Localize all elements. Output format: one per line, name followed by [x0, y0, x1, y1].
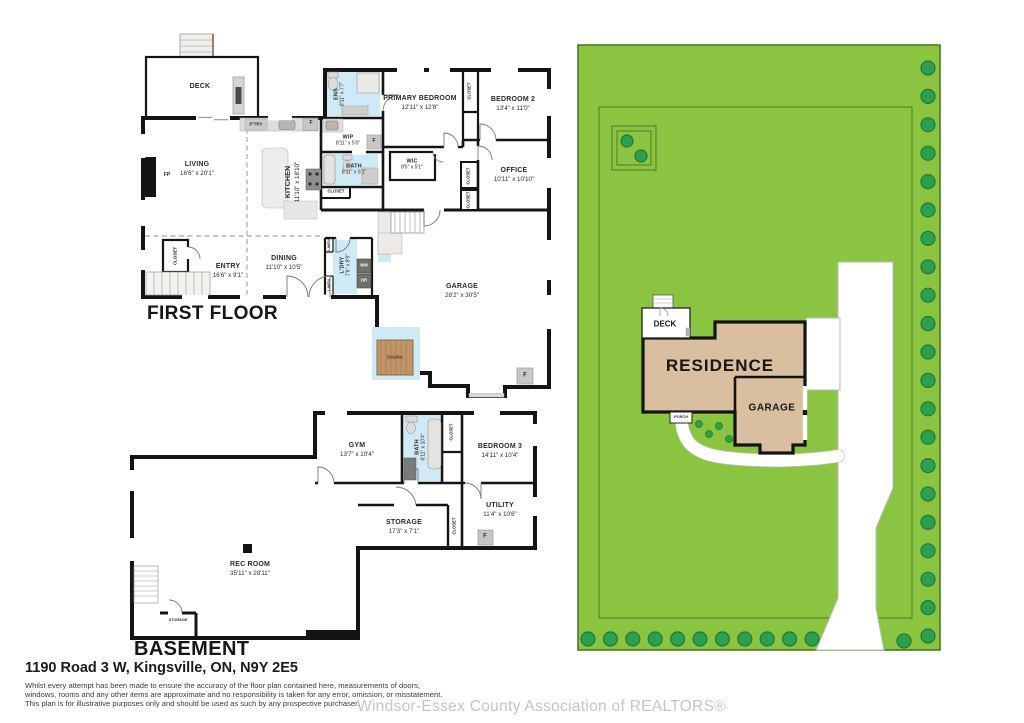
- closet-label: CLOSET: [328, 190, 345, 195]
- room-label-bath: BATH8'11" x 5'1": [342, 163, 366, 176]
- basement-title: BASEMENT: [134, 638, 249, 661]
- room-label-deck: DECK: [190, 83, 211, 91]
- tree-column: [921, 61, 935, 643]
- room-label-rec-room: REC ROOM35'11" x 28'11": [230, 561, 270, 577]
- tree: [648, 632, 662, 646]
- tree: [921, 89, 935, 103]
- tree: [603, 632, 617, 646]
- room-label-wip: WIP8'11" x 5'0": [336, 134, 360, 147]
- property-address: 1190 Road 3 W, Kingsville, ON, N9Y 2E5: [25, 660, 298, 676]
- washer-label: WM: [360, 264, 367, 269]
- basement-outline: [132, 413, 535, 638]
- room-label-kitchen: KITCHEN11'10" x 18'10": [285, 162, 301, 202]
- room-label-bedroom2: BEDROOM 213'4" x 11'0": [491, 96, 535, 112]
- closet-label: CLOSET: [468, 83, 473, 100]
- linen-label: LINEN: [327, 239, 331, 250]
- first-floor-title: FIRST FLOOR: [147, 303, 278, 325]
- tree: [921, 544, 935, 558]
- support-post: [243, 544, 252, 553]
- site-deck-label: DECK: [654, 319, 677, 328]
- tree: [921, 175, 935, 189]
- fireplace-label: FP: [164, 173, 170, 179]
- disclaimer-line: This plan is for illustrative purposes o…: [25, 699, 359, 708]
- small-storage-label: STORAGE: [169, 618, 188, 622]
- tree: [921, 146, 935, 160]
- room-label-gym: GYM13'7" x 10'4": [340, 442, 374, 458]
- basement-stairs: [134, 566, 158, 603]
- tree: [671, 632, 685, 646]
- garage-bay-door: [469, 393, 504, 397]
- tree: [581, 632, 595, 646]
- tree: [921, 288, 935, 302]
- room-label-office: OFFICE10'11" x 10'10": [494, 167, 534, 183]
- site-plan: [578, 45, 940, 650]
- tree: [921, 601, 935, 615]
- tree: [921, 430, 935, 444]
- tree: [693, 632, 707, 646]
- tree: [921, 345, 935, 359]
- disclaimer-line: Whilst every attempt has been made to en…: [25, 681, 420, 690]
- tree: [921, 61, 935, 75]
- room-label-entry: ENTRY16'6" x 9'1": [213, 263, 244, 279]
- tree: [921, 373, 935, 387]
- closet-label: CLOSET: [453, 518, 458, 535]
- tree: [783, 632, 797, 646]
- closet-label: CLOSET: [450, 424, 455, 441]
- room-label-dining: DINING11'10" x 10'5": [266, 255, 303, 271]
- furnace-label: F: [483, 534, 487, 541]
- tree: [921, 402, 935, 416]
- room-label-garage: GARAGE28'2" x 30'5": [445, 283, 479, 299]
- realtor-watermark: Windsor-Essex County Association of REAL…: [357, 698, 726, 716]
- tree: [897, 634, 911, 648]
- room-label-laundry: L'DRY7'6" x 8'9": [339, 254, 352, 276]
- room-label-ensuite: ENS8'11" x 7'7": [333, 82, 346, 106]
- site-garage-label: GARAGE: [749, 402, 796, 414]
- tree: [715, 632, 729, 646]
- tree: [626, 632, 640, 646]
- tree: [921, 487, 935, 501]
- tree: [738, 632, 752, 646]
- tree: [921, 203, 935, 217]
- tree: [921, 231, 935, 245]
- tree: [805, 632, 819, 646]
- closet-label: CLOSET: [467, 168, 472, 185]
- room-label-bedroom3: BEDROOM 314'11" x 10'4": [478, 443, 522, 459]
- tree: [921, 629, 935, 643]
- room-label-basement-bath: BATH6'11" x 10'4": [414, 433, 427, 460]
- wall-chunk: [306, 630, 358, 638]
- fireplace: [143, 157, 156, 197]
- tree: [921, 260, 935, 274]
- room-label-utility: UTILITY11'4" x 10'6": [483, 502, 516, 518]
- sauna-label: SAUNA: [387, 354, 403, 359]
- deck-stairs: [180, 34, 213, 57]
- tree: [921, 459, 935, 473]
- site-porch-label: PORCH: [674, 415, 688, 419]
- basement-plan: [130, 411, 538, 638]
- linen-label: LINEN: [327, 279, 331, 290]
- room-label-living: LIVING16'6" x 20'1": [180, 161, 214, 177]
- closet-label: CLOSET: [467, 192, 472, 209]
- floorplan-sheet: DECK LIVING16'6" x 20'1" FP P'TRY F KITC…: [0, 0, 1024, 723]
- site-residence-label: RESIDENCE: [666, 356, 774, 376]
- tree: [921, 317, 935, 331]
- pantry-label: P'TRY: [250, 121, 263, 126]
- room-label-primary-bedroom: PRIMARY BEDROOM12'11" x 12'8": [383, 95, 456, 111]
- tree: [921, 118, 935, 132]
- fridge-label: F: [309, 121, 312, 127]
- room-label-wic: WIC8'5" x 5'1": [401, 158, 423, 171]
- dryer-label: DR: [361, 279, 367, 284]
- tree: [760, 632, 774, 646]
- freezer-label: F: [523, 373, 527, 380]
- room-label-storage: STORAGE17'3" x 7'1": [386, 519, 422, 535]
- fridge-label-wip: F: [372, 139, 375, 145]
- tree: [921, 515, 935, 529]
- tree: [921, 572, 935, 586]
- closet-label: CLOSET: [172, 247, 177, 265]
